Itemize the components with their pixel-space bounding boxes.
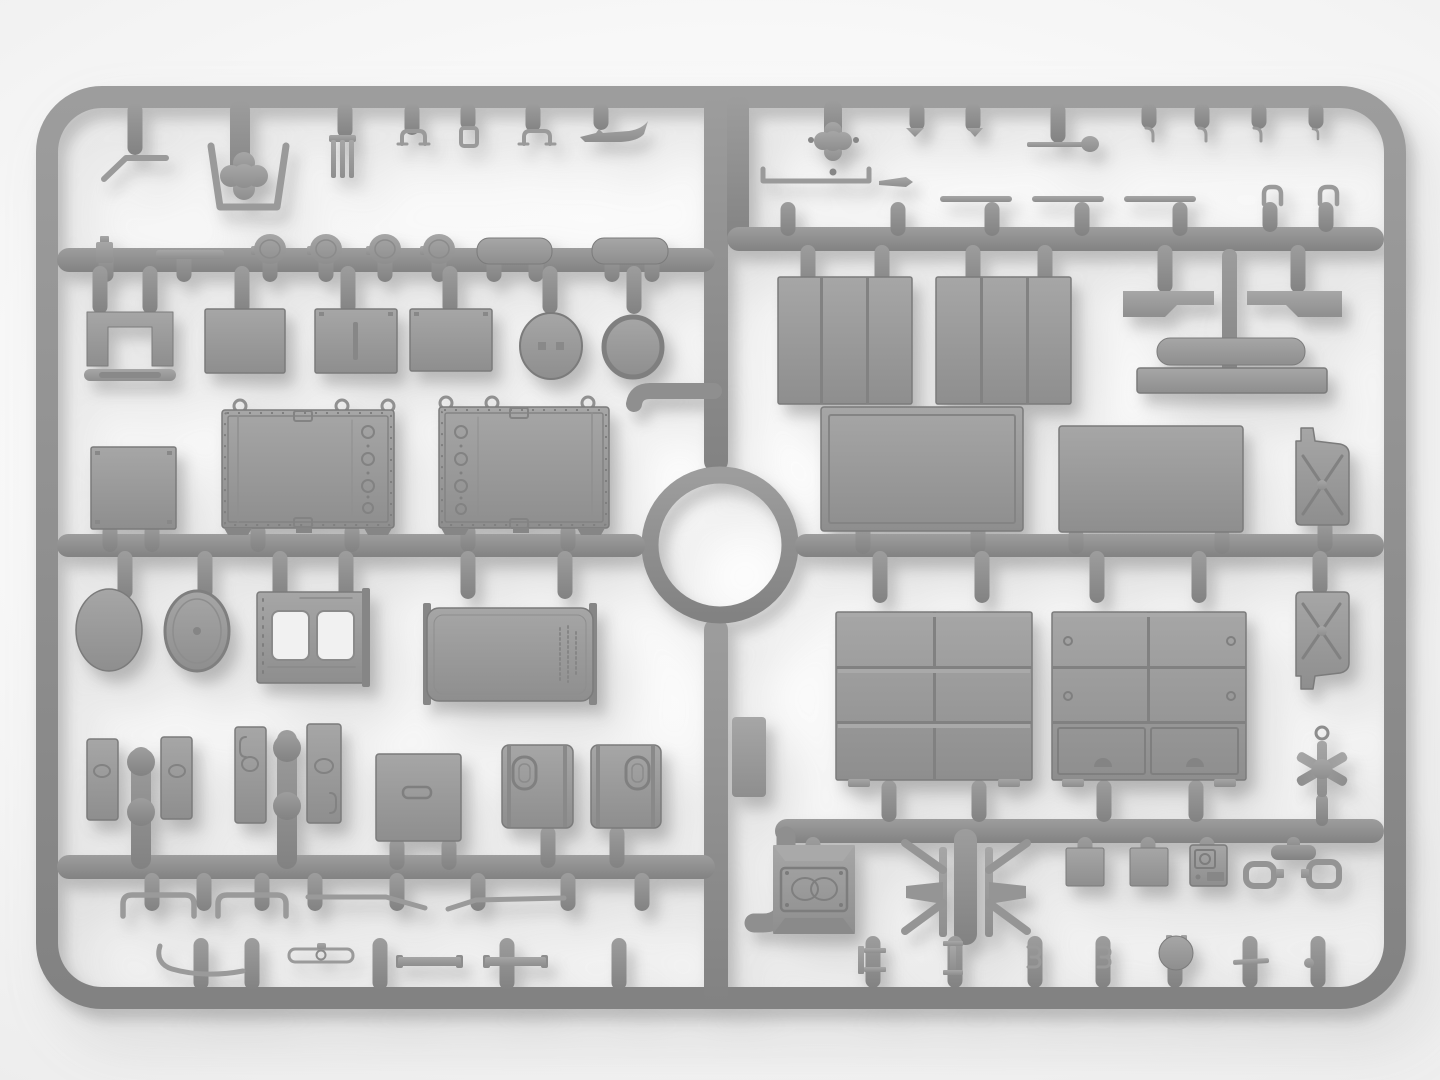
part-channel-strip bbox=[763, 169, 869, 181]
gate bbox=[461, 103, 476, 130]
gate bbox=[985, 202, 1000, 236]
part-cylinder-2 bbox=[592, 238, 668, 264]
gate bbox=[373, 938, 388, 990]
gate bbox=[1051, 103, 1066, 143]
part-cylinder-1 bbox=[477, 238, 552, 264]
part-panel-triple-1 bbox=[778, 277, 912, 404]
gate bbox=[1096, 936, 1111, 988]
part-strip-1 bbox=[940, 196, 1012, 202]
part-hook-mark-2 bbox=[1199, 128, 1206, 141]
gate bbox=[1097, 780, 1112, 822]
part-canister-mini bbox=[96, 236, 113, 263]
gate bbox=[1195, 103, 1210, 129]
gate bbox=[966, 103, 981, 132]
part-cabinet-drawers bbox=[1052, 612, 1246, 787]
gate bbox=[471, 873, 486, 911]
gate bbox=[891, 202, 906, 236]
part-wedge-1 bbox=[906, 128, 924, 137]
gate bbox=[308, 873, 323, 911]
gate bbox=[1313, 551, 1328, 595]
part-clover-knob-2 bbox=[808, 122, 859, 176]
part-box-panel-2 bbox=[315, 309, 397, 373]
part-lid-oval-2 bbox=[604, 317, 662, 377]
gate bbox=[541, 826, 556, 868]
part-seat-frame bbox=[84, 312, 176, 381]
gate bbox=[1158, 245, 1173, 293]
part-bin-box bbox=[1059, 426, 1243, 532]
gate bbox=[1309, 103, 1324, 129]
part-clamp-ring-1 bbox=[1246, 864, 1284, 886]
gate bbox=[338, 103, 353, 138]
sprue-render bbox=[0, 0, 1440, 1080]
gate bbox=[561, 873, 576, 911]
part-door-pair-1 bbox=[87, 737, 192, 869]
gate bbox=[442, 838, 457, 870]
gate bbox=[245, 938, 260, 990]
gate bbox=[143, 266, 158, 314]
part-jerry-can-1 bbox=[1296, 428, 1349, 525]
part-crate-riveted-2 bbox=[439, 397, 609, 535]
part-radio-set bbox=[773, 845, 855, 934]
part-table-bracket-r bbox=[1247, 291, 1342, 317]
part-table-bracket-l bbox=[1123, 291, 1214, 317]
part-box-panel-1 bbox=[205, 309, 285, 373]
gate bbox=[543, 266, 558, 314]
part-strip-3 bbox=[1124, 196, 1196, 202]
part-bin-lid-box bbox=[821, 407, 1023, 531]
gate bbox=[1173, 202, 1188, 236]
part-crate-riveted-1 bbox=[222, 400, 394, 535]
part-machete bbox=[580, 121, 648, 142]
gate bbox=[781, 202, 796, 236]
gate bbox=[1142, 103, 1157, 129]
gate bbox=[255, 873, 270, 911]
part-star-coupling bbox=[1295, 727, 1348, 797]
gate bbox=[610, 826, 625, 868]
part-taper-strip bbox=[879, 177, 913, 187]
part-clover-knob-1 bbox=[220, 152, 268, 200]
part-stowage-square-1 bbox=[1066, 848, 1104, 886]
part-rod-kinked-1 bbox=[308, 897, 425, 908]
part-lid-disc-2 bbox=[165, 591, 229, 671]
part-lid-oval-1 bbox=[520, 313, 582, 379]
part-plank-2 bbox=[483, 955, 548, 968]
gate bbox=[635, 873, 650, 911]
gate bbox=[1090, 551, 1105, 603]
part-hook-mark-1 bbox=[1146, 128, 1153, 141]
gate bbox=[341, 266, 356, 314]
gate bbox=[873, 551, 888, 603]
part-clamp-small bbox=[398, 131, 429, 144]
part-drum-2 bbox=[591, 745, 661, 828]
gate bbox=[975, 551, 990, 603]
part-box-small bbox=[91, 447, 176, 529]
part-u-clip-1 bbox=[1264, 187, 1281, 204]
gate bbox=[627, 266, 642, 314]
part-cabinet-plain bbox=[836, 612, 1032, 787]
gate bbox=[93, 266, 108, 314]
part-hatch-frame bbox=[257, 588, 370, 687]
gate bbox=[526, 103, 541, 132]
part-clamp-ring-2 bbox=[1301, 862, 1339, 886]
gate bbox=[390, 873, 405, 911]
part-wedge-2 bbox=[967, 128, 983, 137]
part-handle-u-2 bbox=[218, 895, 286, 916]
gate bbox=[882, 780, 897, 822]
part-drum-1 bbox=[502, 745, 573, 828]
part-staple-bracket bbox=[519, 131, 555, 144]
part-panel-slab bbox=[732, 717, 766, 797]
part-plank-1 bbox=[396, 955, 463, 968]
gate bbox=[1075, 202, 1090, 236]
part-dot-pin bbox=[1304, 958, 1314, 968]
part-comb-bracket bbox=[329, 135, 356, 178]
gate bbox=[1189, 780, 1204, 822]
part-stick-small bbox=[1233, 958, 1269, 965]
gate bbox=[194, 938, 209, 990]
part-flat-bar bbox=[156, 250, 224, 259]
gate bbox=[1252, 103, 1267, 129]
gate bbox=[1263, 202, 1278, 232]
part-base-plate bbox=[1137, 368, 1327, 393]
part-box-latch bbox=[376, 754, 461, 841]
gate bbox=[1319, 202, 1334, 232]
gate bbox=[1192, 551, 1207, 603]
part-linkage-bar bbox=[289, 943, 353, 962]
part-hook-mark-4 bbox=[1313, 129, 1318, 139]
gate bbox=[197, 873, 212, 911]
gate bbox=[612, 938, 627, 990]
gate bbox=[972, 780, 987, 822]
part-strip-2 bbox=[1032, 196, 1104, 202]
gate bbox=[128, 103, 143, 155]
gate bbox=[145, 873, 160, 911]
part-roller-bar bbox=[1157, 338, 1305, 365]
part-door-panel bbox=[423, 603, 597, 705]
gate bbox=[461, 551, 476, 599]
part-u-clip-2 bbox=[1320, 187, 1337, 204]
gate bbox=[1291, 245, 1306, 293]
part-rod-kinked-2 bbox=[448, 898, 564, 909]
part-ball-knob bbox=[1159, 935, 1193, 970]
part-camera-box bbox=[1190, 845, 1227, 886]
gate bbox=[594, 103, 609, 130]
gate bbox=[866, 936, 881, 988]
gate bbox=[558, 551, 573, 599]
part-stowage-square-2 bbox=[1130, 848, 1168, 886]
gate bbox=[235, 266, 250, 314]
gate bbox=[443, 266, 458, 314]
part-door-pair-2 bbox=[235, 724, 341, 869]
gate bbox=[390, 838, 405, 870]
part-hook-mark-3 bbox=[1254, 128, 1261, 141]
part-jerry-can-2 bbox=[1296, 592, 1349, 689]
part-buckle-small bbox=[461, 128, 477, 146]
part-grab-handle-rod bbox=[104, 158, 166, 179]
gate bbox=[910, 103, 925, 131]
part-box-panel-3 bbox=[410, 309, 492, 371]
scene-svg bbox=[0, 0, 1440, 1080]
part-panel-triple-2 bbox=[936, 277, 1071, 404]
part-lid-disc-1 bbox=[76, 589, 142, 671]
